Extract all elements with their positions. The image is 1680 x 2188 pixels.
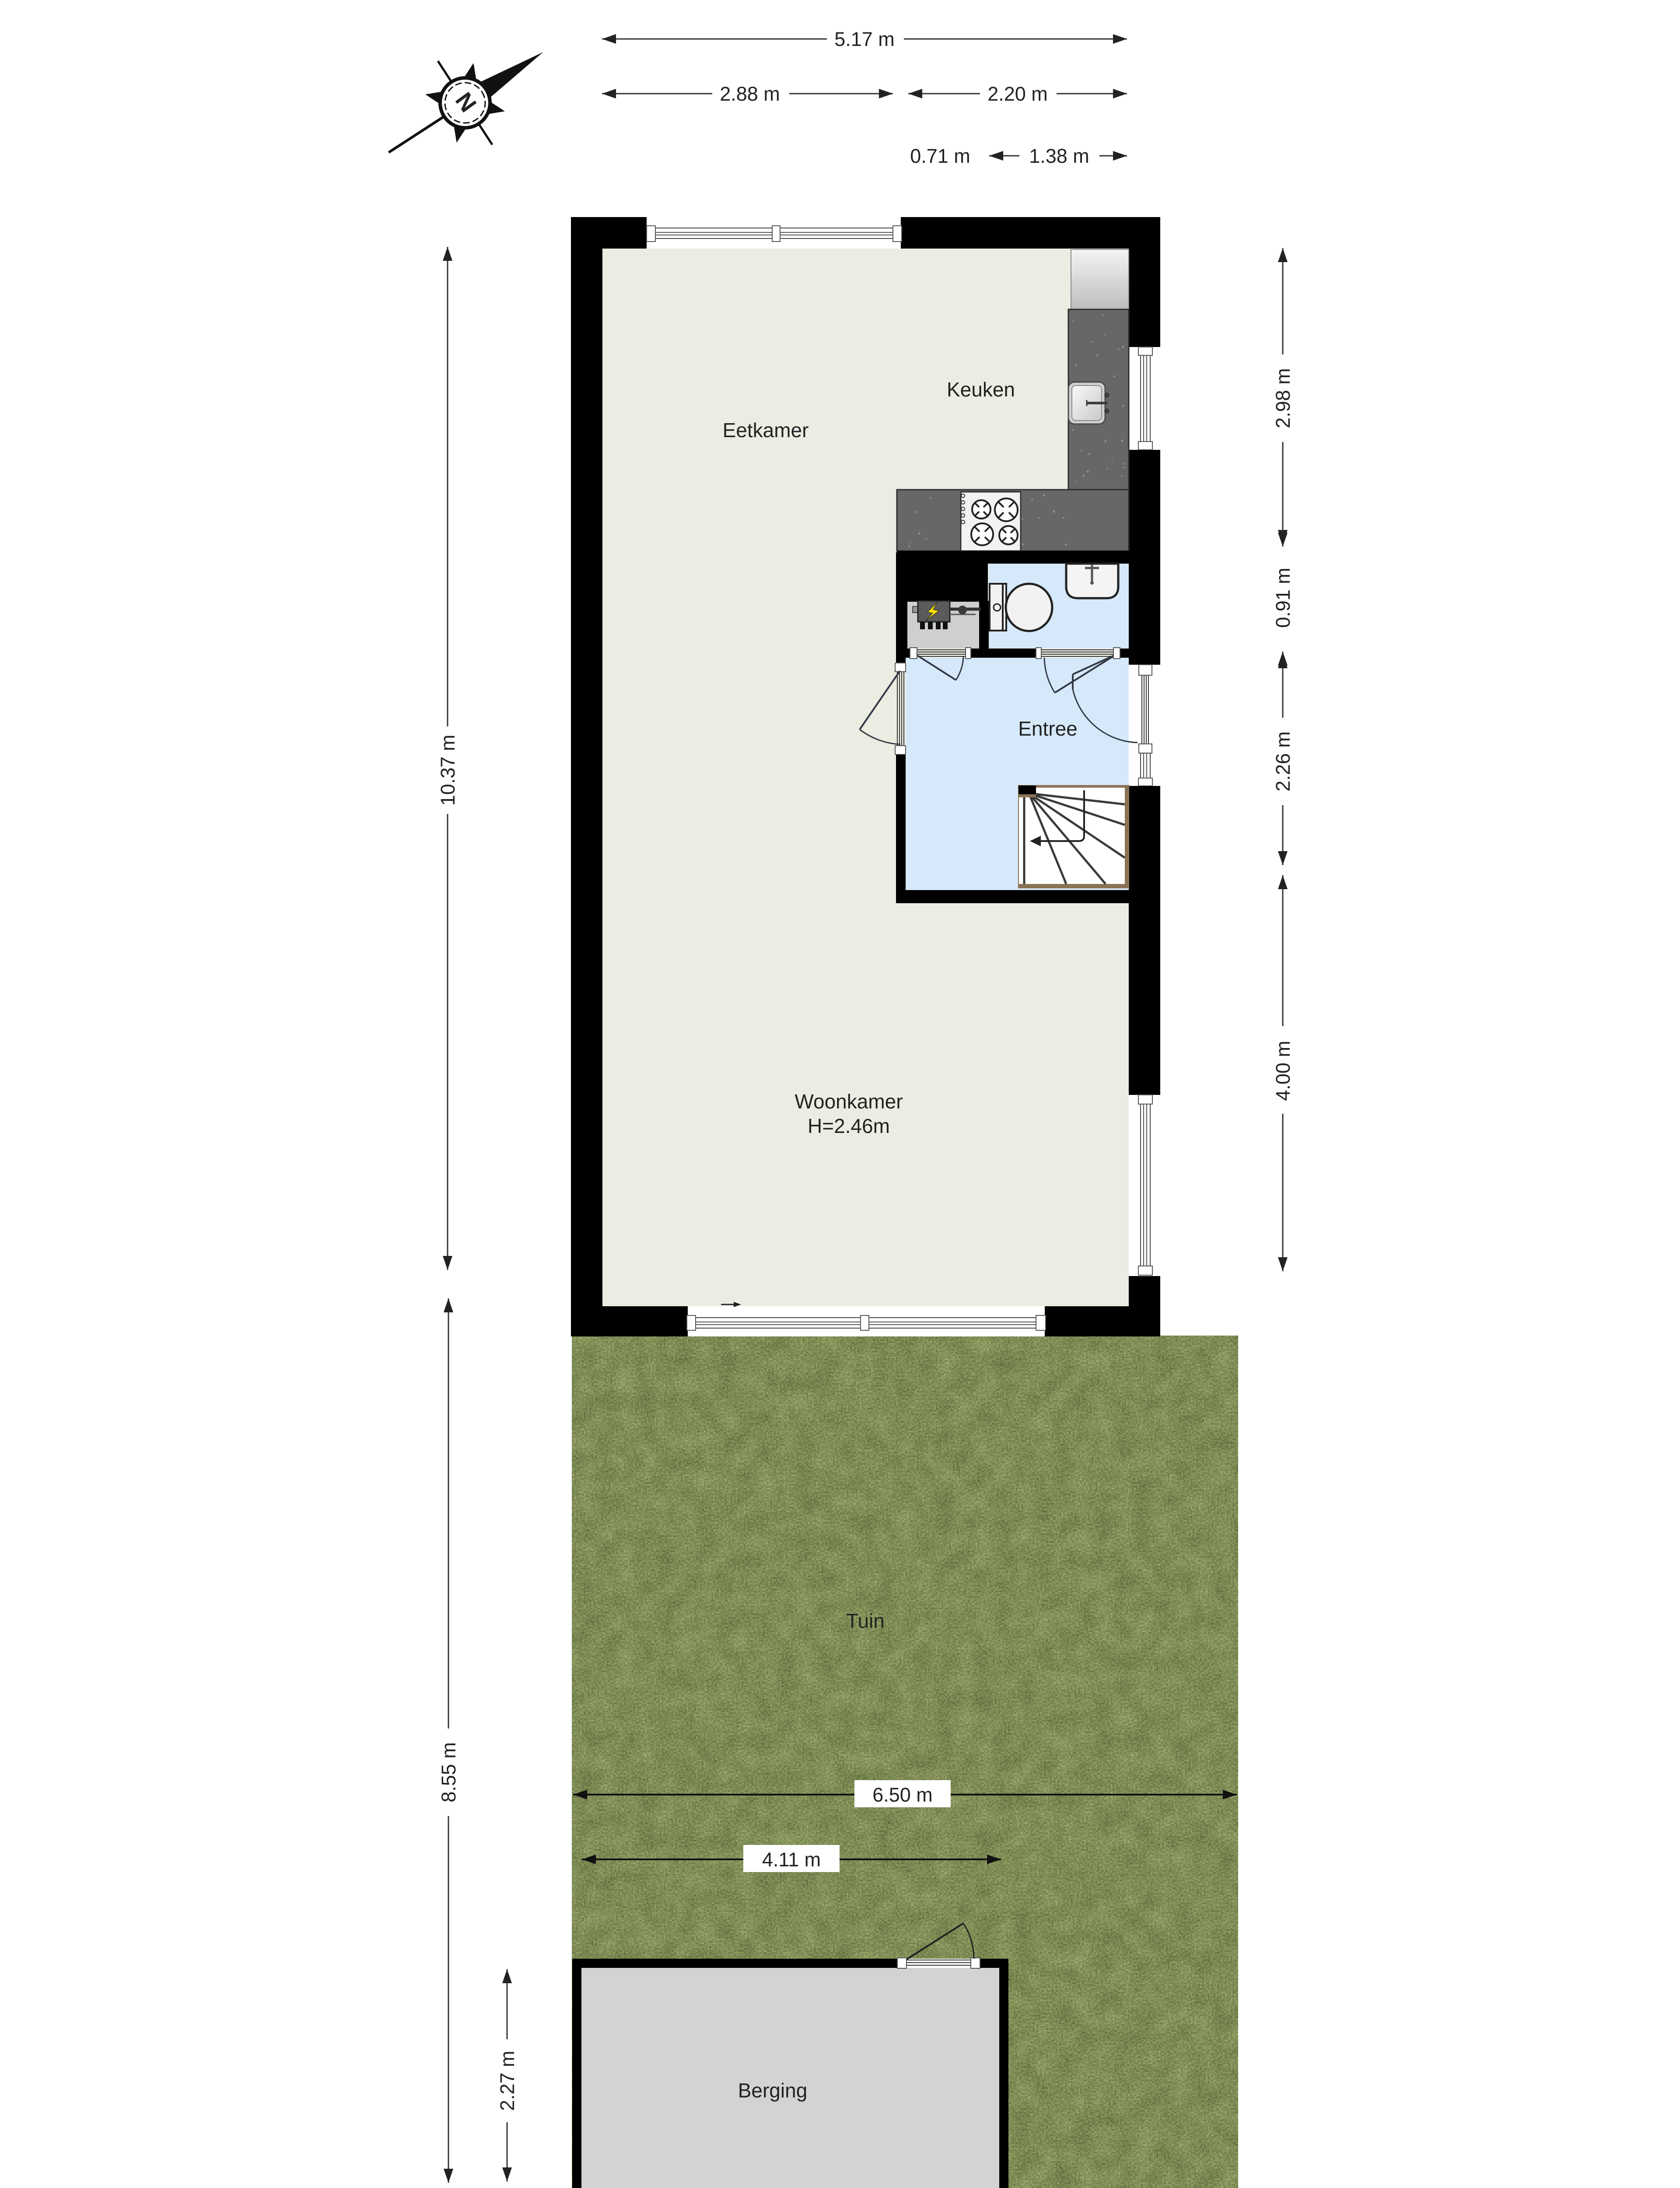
- svg-text:0.71 m: 0.71 m: [910, 145, 970, 167]
- svg-text:2.27 m: 2.27 m: [496, 2051, 518, 2111]
- svg-text:4.11 m: 4.11 m: [762, 1848, 821, 1871]
- svg-text:Woonkamer: Woonkamer: [794, 1090, 903, 1113]
- svg-text:Tuin: Tuin: [846, 1609, 885, 1632]
- svg-text:2.20 m: 2.20 m: [987, 83, 1048, 105]
- svg-text:5.17 m: 5.17 m: [834, 28, 895, 50]
- svg-text:2.88 m: 2.88 m: [720, 83, 780, 105]
- svg-text:Berging: Berging: [738, 2079, 808, 2102]
- svg-text:Eetkamer: Eetkamer: [723, 419, 809, 442]
- svg-text:2.98 m: 2.98 m: [1272, 368, 1294, 428]
- svg-text:4.00 m: 4.00 m: [1272, 1041, 1294, 1101]
- svg-text:2.26 m: 2.26 m: [1272, 731, 1294, 792]
- svg-text:H=2.46m: H=2.46m: [808, 1115, 890, 1137]
- svg-text:10.37 m: 10.37 m: [437, 735, 459, 806]
- svg-text:Keuken: Keuken: [947, 378, 1015, 401]
- svg-text:0.91 m: 0.91 m: [1272, 568, 1294, 628]
- svg-text:Entree: Entree: [1018, 717, 1078, 740]
- svg-text:1.38 m: 1.38 m: [1029, 145, 1089, 167]
- svg-text:6.50 m: 6.50 m: [872, 1784, 933, 1806]
- svg-text:8.55 m: 8.55 m: [437, 1742, 460, 1802]
